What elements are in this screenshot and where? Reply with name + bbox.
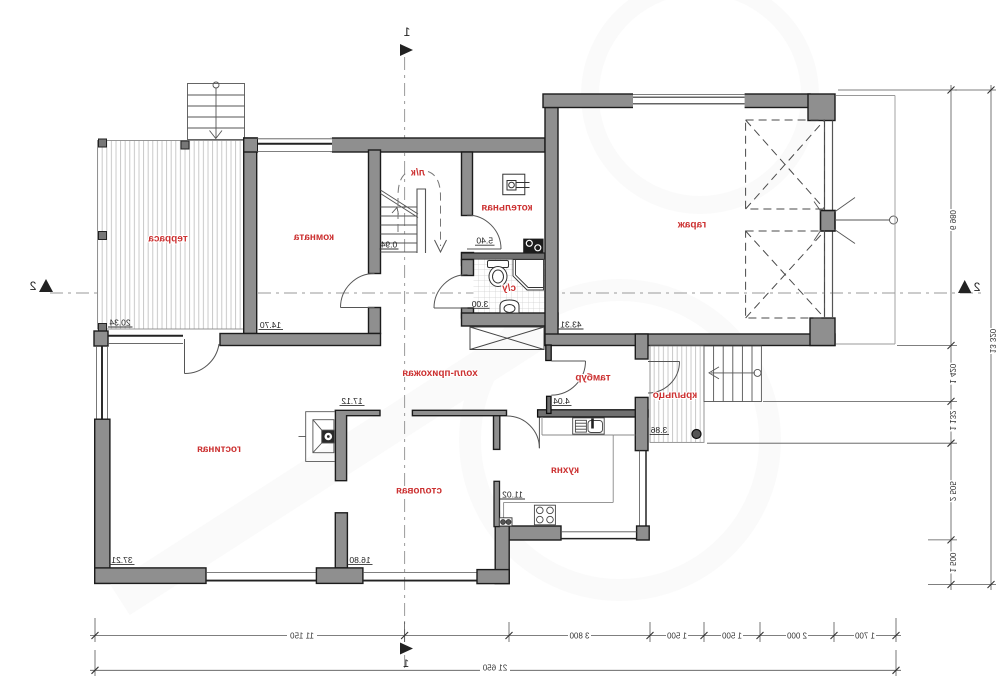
svg-text:3.00: 3.00	[471, 299, 488, 309]
svg-text:0.94: 0.94	[380, 240, 397, 250]
svg-text:3 800: 3 800	[569, 631, 590, 640]
svg-text:1: 1	[403, 658, 409, 670]
svg-text:терраса: терраса	[148, 234, 188, 245]
svg-text:43.31: 43.31	[560, 320, 582, 330]
svg-text:1 500: 1 500	[721, 631, 742, 640]
svg-text:14.70: 14.70	[260, 320, 282, 330]
svg-text:11 150: 11 150	[290, 631, 314, 640]
svg-text:6 980: 6 980	[948, 209, 957, 230]
svg-text:13 320: 13 320	[988, 328, 997, 353]
svg-text:л/к: л/к	[410, 168, 425, 179]
svg-text:4.04: 4.04	[553, 396, 570, 406]
svg-text:с/у: с/у	[502, 283, 516, 294]
svg-text:кухня: кухня	[551, 465, 579, 476]
svg-text:20.34: 20.34	[109, 318, 131, 328]
svg-text:17.12: 17.12	[341, 396, 363, 406]
svg-text:16.80: 16.80	[349, 555, 371, 565]
svg-text:2: 2	[973, 280, 980, 294]
svg-text:1 500: 1 500	[948, 552, 957, 573]
svg-text:комната: комната	[293, 232, 334, 243]
svg-text:21 650: 21 650	[482, 664, 507, 673]
svg-text:2 505: 2 505	[948, 481, 957, 502]
svg-text:1: 1	[403, 25, 410, 39]
svg-text:гостиная: гостиная	[197, 444, 241, 455]
svg-text:крыльцо: крыльцо	[653, 390, 697, 401]
svg-text:2 000: 2 000	[786, 631, 807, 640]
svg-text:3.86: 3.86	[650, 425, 667, 435]
svg-text:1 500: 1 500	[666, 631, 687, 640]
svg-text:1 132: 1 132	[948, 410, 957, 431]
svg-text:холл-прихожая: холл-прихожая	[402, 368, 478, 379]
svg-text:гараж: гараж	[677, 220, 706, 231]
svg-text:2: 2	[29, 279, 36, 293]
svg-text:столовая: столовая	[396, 486, 442, 497]
svg-text:котельная: котельная	[481, 203, 532, 214]
svg-text:1 700: 1 700	[854, 631, 875, 640]
svg-text:1 420: 1 420	[948, 363, 957, 384]
svg-text:тамбур: тамбур	[575, 372, 610, 384]
svg-text:5.40: 5.40	[476, 236, 493, 246]
svg-text:37.21: 37.21	[111, 555, 133, 565]
svg-text:11.02: 11.02	[502, 489, 523, 499]
